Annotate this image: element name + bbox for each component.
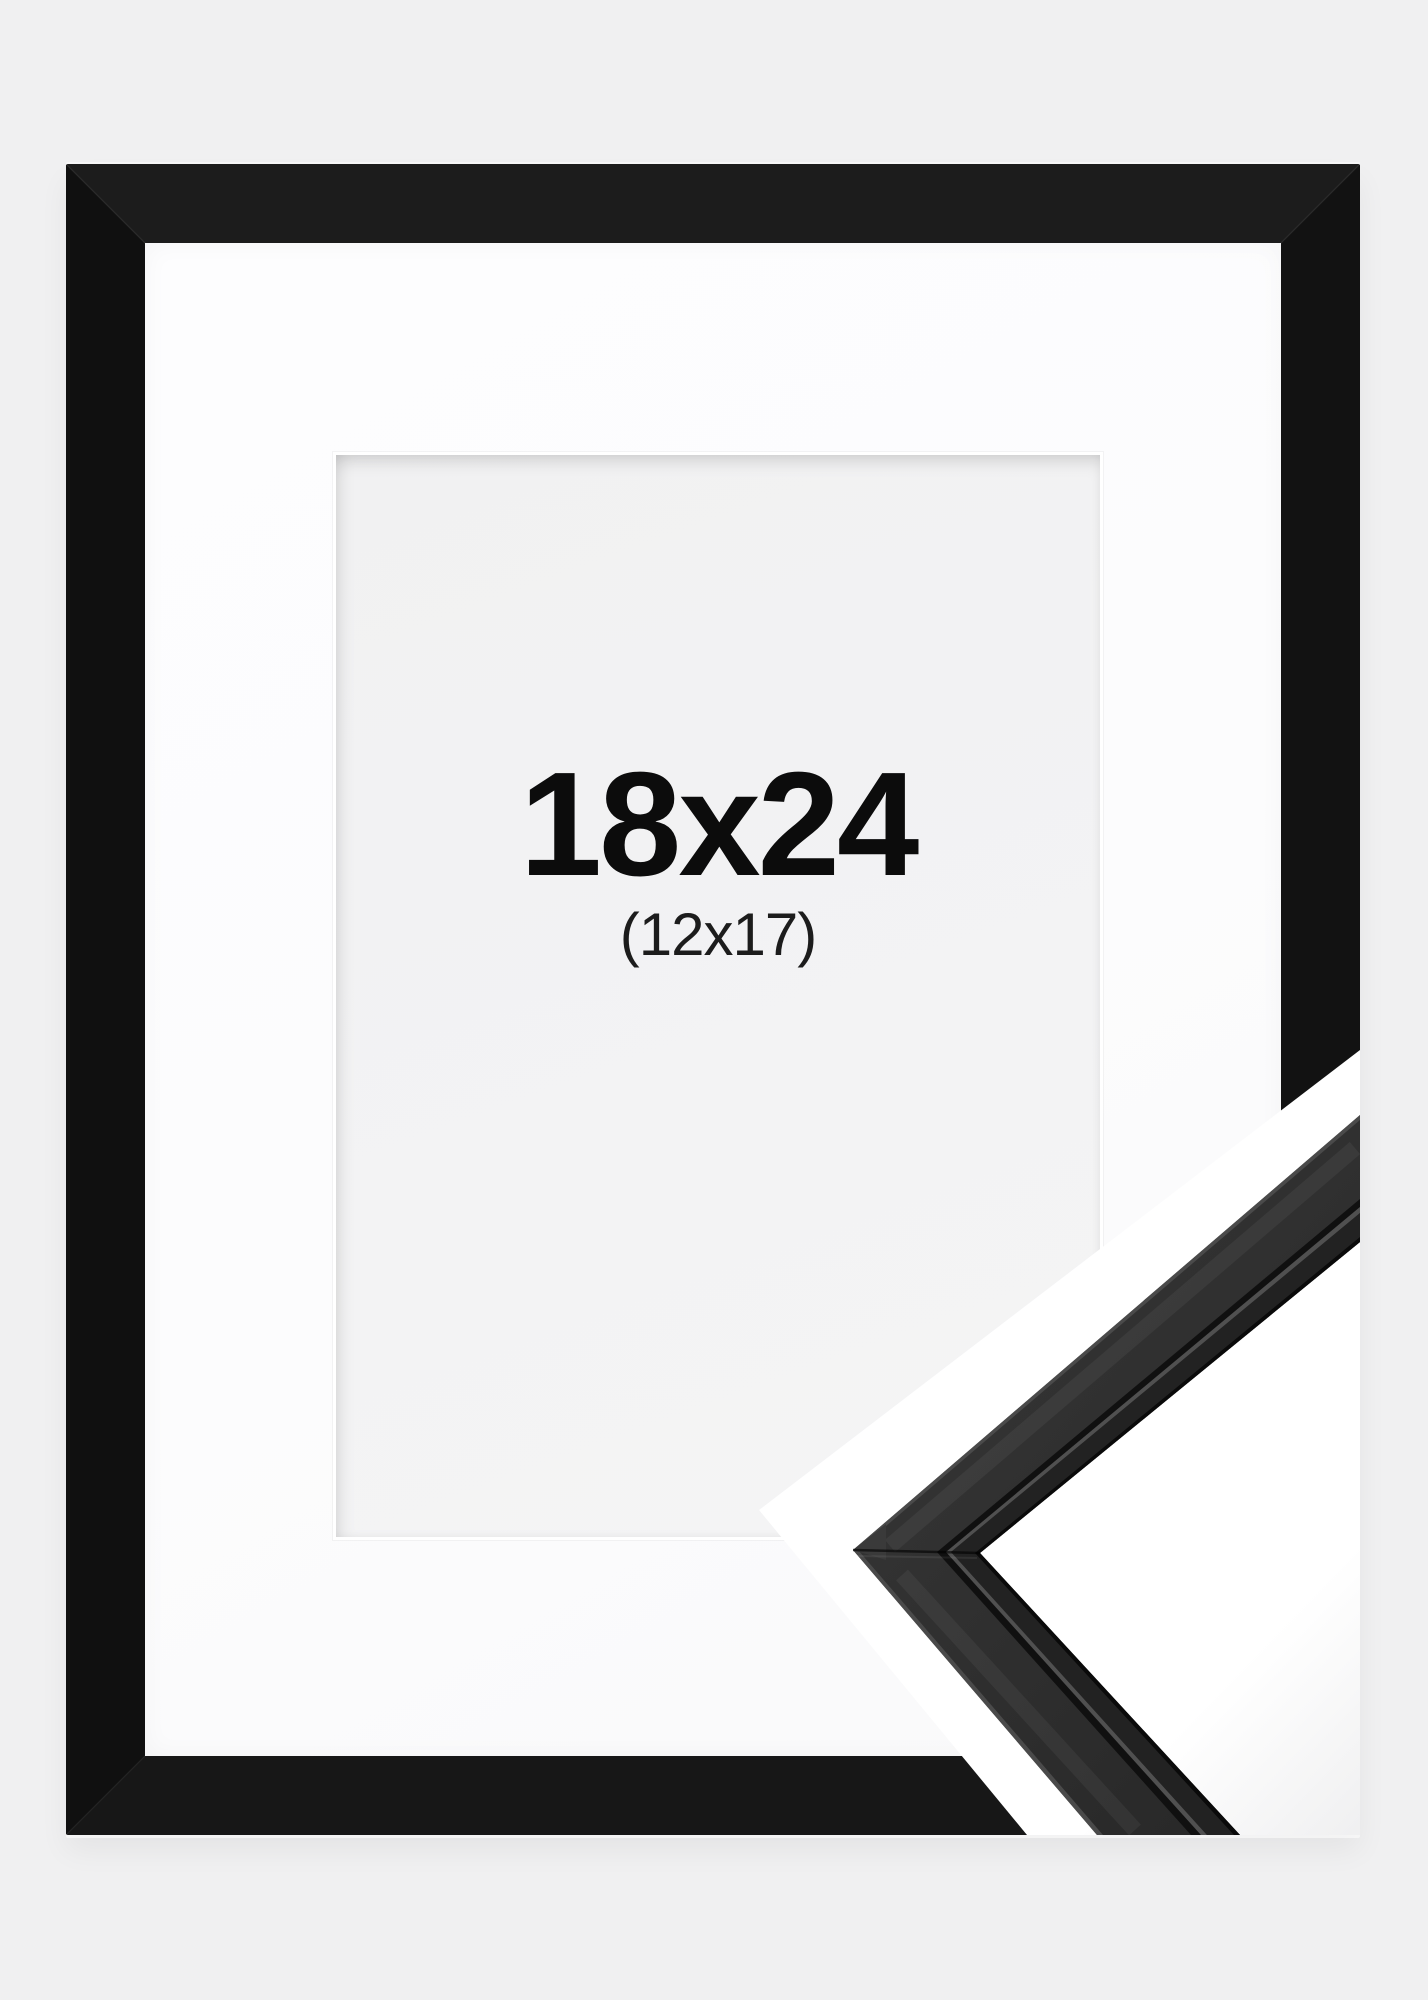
product-photo: 18x24 (12x17) (0, 0, 1428, 2000)
inner-size-label: (12x17) (620, 905, 816, 965)
mat-opening: 18x24 (12x17) (333, 452, 1103, 1540)
size-label: 18x24 (520, 751, 917, 899)
